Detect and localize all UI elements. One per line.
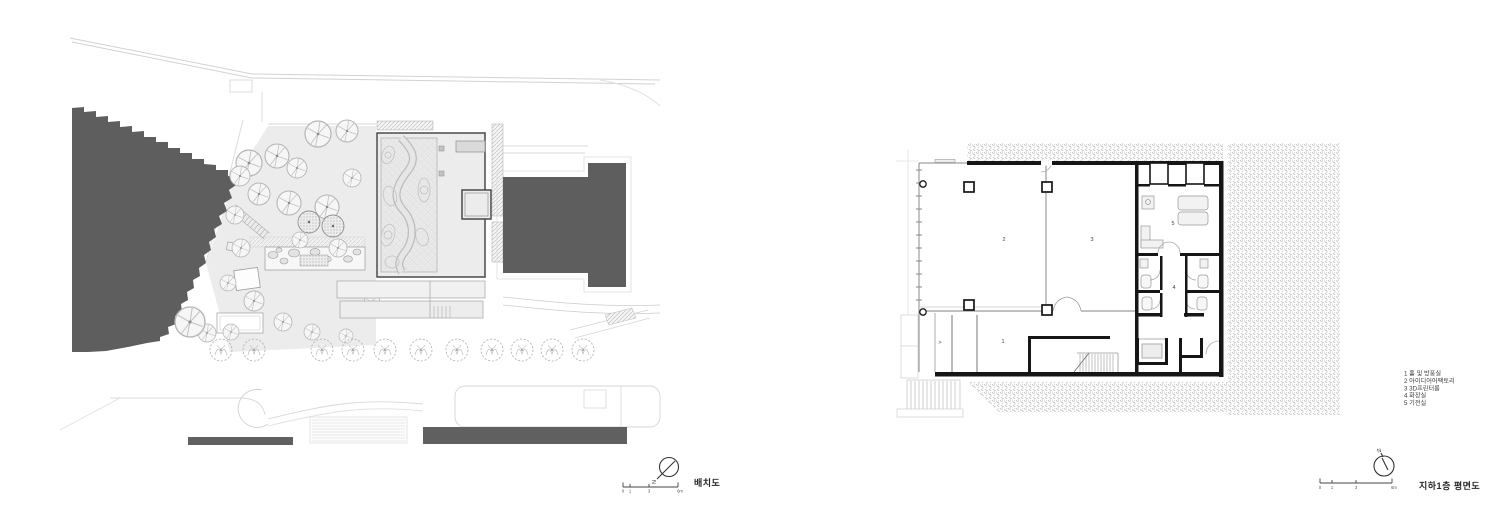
site-plan-title: 배치도 [694,477,721,488]
legend-item: 2 아이디어어팩토리 [1404,377,1455,385]
neighbor-building-mass [503,163,626,287]
room-label-2: 2 [1002,237,1005,243]
svg-text:3: 3 [1355,485,1358,490]
svg-text:1: 1 [629,489,632,494]
rooftop-equipment [456,141,485,152]
existing-building-mass [72,107,236,352]
architectural-drawing: N 0 1 3 6m 배치도 [0,0,1500,531]
site-plan: N 0 1 3 6m 배치도 [60,38,721,494]
entry-gap [1041,161,1052,166]
wall-niche [1150,163,1168,184]
lower-wing-slab [337,281,485,298]
svg-text:1: 1 [1331,485,1334,490]
road-rounded-outline [455,386,660,427]
svg-text:0: 0 [622,489,625,494]
site-scale-labels: 0 1 3 6m [622,489,684,494]
room-legend: 1 홀 및 방풍실 2 아이디어어팩토리 3 3D프린터룸 4 화장실 5 기전… [1404,370,1455,408]
legend-item: 1 홀 및 방풍실 [1404,370,1441,378]
legend-item: 3 3D프린터룸 [1404,384,1440,392]
floor-north-label: N [1377,448,1382,455]
legend-item: 5 기전실 [1404,399,1427,407]
svg-text:6m: 6m [677,489,683,494]
road-area [60,386,660,445]
svg-text:0: 0 [1319,485,1322,490]
drawing-sheet: N 0 1 3 6m 배치도 [0,0,1500,531]
legend-item: 4 화장실 [1404,392,1427,400]
room-label-3: 3 [1090,237,1093,243]
floor-plan: 2 3 5 4 1 > 1 홀 및 방풍실 2 아이디어어팩토리 3 3D프린터… [896,143,1480,491]
door-mark: > [938,340,941,346]
room-label-1: 1 [1001,339,1004,345]
room-label-4: 4 [1172,285,1175,291]
svg-text:3: 3 [648,489,651,494]
svg-text:6m: 6m [1391,485,1397,490]
wall-niche [1186,163,1204,184]
exterior-left [896,150,919,378]
floor-scale-labels: 0 1 3 6m [1319,485,1398,490]
exterior-stair [897,380,963,417]
crosswalk [310,417,407,443]
site-north-label: N [652,480,658,484]
skylight-protrusion [462,190,491,219]
site-scale-bar [623,483,678,488]
room-label-5: 5 [1171,221,1174,227]
floor-plan-title: 지하1층 평면도 [1419,480,1480,491]
floor-interior [919,163,1220,373]
section-bar-right [423,427,627,444]
section-bar-left [188,437,293,445]
site-north-arrow-icon [657,458,679,480]
floor-north-arrow-icon [1374,453,1394,476]
floor-scale-bar [1320,479,1392,484]
